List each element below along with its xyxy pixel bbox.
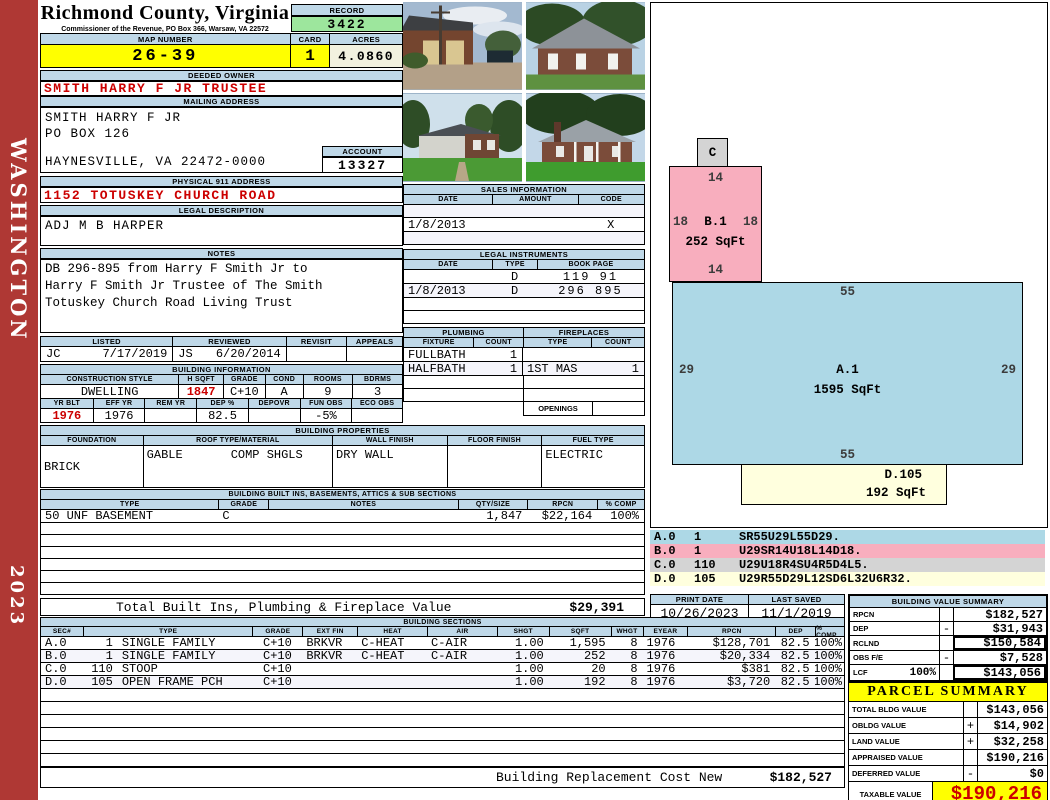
listed-initials: JC [46, 347, 60, 361]
bi-comp: 100% [597, 510, 644, 522]
val-roof-material: COMP SHGLS [183, 448, 303, 462]
col-bi-comp: % COMP [597, 500, 644, 509]
col-ecoobs: ECO OBS [351, 399, 402, 408]
bs-type: SINGLE FAMILY [118, 637, 253, 649]
reviewed-value: JS 6/20/2014 [172, 347, 285, 361]
building-sections-label: BUILDING SECTIONS [40, 617, 845, 627]
building-info-vals-1: DWELLING 1847 C+10 A 9 3 [40, 385, 403, 399]
review-values: JC 7/17/2019 JS 6/20/2014 [40, 347, 403, 362]
col-grade: GRADE [223, 375, 265, 384]
legal-instrument-empty-row [403, 311, 645, 324]
built-ins-empty-row [40, 535, 645, 547]
bvs-value: $31,943 [953, 622, 1046, 635]
fixture-count: 1 [473, 362, 523, 375]
building-section-empty-row [40, 754, 845, 767]
bs-extfin: BRKVR [302, 650, 357, 662]
sale-code [578, 205, 644, 217]
built-ins-total-value: $29,391 [569, 600, 624, 615]
legal-instruments-cols: DATE TYPE BOOK PAGE [403, 260, 645, 270]
parcel-sign [964, 750, 977, 765]
revisit-value [286, 347, 347, 361]
bs-whgt: 8 [611, 650, 643, 662]
bvs-label-text: RPCN [853, 610, 874, 619]
building-section-empty-row [40, 715, 845, 728]
bvs-sign [940, 665, 953, 680]
building-section-row: B.0 1 SINGLE FAMILY C+10 BRKVR C-HEAT C-… [40, 650, 845, 663]
plumbing-label: PLUMBING [404, 328, 523, 337]
built-ins-empty-row [40, 583, 645, 595]
sale-date [404, 205, 492, 217]
openings-count [593, 402, 644, 415]
bvs-row-label: RPCN [850, 608, 940, 621]
building-info-cols-2: YR BLT EFF YR REM YR DEP % DEPOVR FUN OB… [40, 399, 403, 409]
col-sale-code: CODE [578, 195, 644, 204]
bs-num: 1 [83, 637, 118, 649]
col-bi-rpcn: RPCN [527, 500, 597, 509]
col-roof: ROOF TYPE/MATERIAL [143, 436, 332, 445]
physical-address-value: 1152 TOTUSKEY CHURCH ROAD [40, 187, 403, 203]
a1-dim-top: 55 [673, 285, 1022, 299]
li-date: 1/8/2013 [404, 284, 492, 297]
bs-sqft: 252 [549, 650, 611, 662]
parcel-sign: + [964, 718, 977, 733]
legend-sec: B.0 [650, 544, 694, 558]
parcel-sign: - [964, 766, 977, 781]
taxable-row: TAXABLE VALUE $190,216 [849, 782, 1047, 800]
building-info-label: BUILDING INFORMATION [40, 364, 403, 375]
parcel-row: DEFERRED VALUE - $0 [849, 766, 1047, 782]
bs-eyear: 1976 [643, 676, 688, 688]
legend-row-d: D.0 105 U29R55D29L12SD6L32U6R32. [650, 572, 1045, 586]
fireplace-type [523, 348, 591, 361]
val-hsqft: 1847 [178, 385, 223, 398]
building-properties-label: BUILDING PROPERTIES [40, 425, 645, 436]
bs-type: STOOP [118, 663, 253, 675]
bvs-row: DEP - $31,943 [850, 622, 1046, 636]
notes-line-1: DB 296-895 from Harry F Smith Jr to [45, 262, 308, 276]
bvs-row-label: DEP [850, 622, 940, 635]
sales-label: SALES INFORMATION [403, 184, 645, 195]
built-ins-empty-row [40, 571, 645, 583]
a1-dim-right: 29 [1001, 363, 1016, 377]
parcel-row-label: DEFERRED VALUE [849, 766, 964, 781]
sketch-section-d105: D.105 192 SqFt [741, 464, 947, 505]
bvs-value: $143,056 [953, 665, 1046, 680]
parcel-row: LAND VALUE + $32,258 [849, 734, 1047, 750]
bs-rpcn: $128,701 [687, 637, 775, 649]
bs-shgt: 1.00 [497, 676, 549, 688]
col-li-bookpage: BOOK PAGE [537, 260, 644, 269]
val-floor-finish [447, 446, 542, 487]
built-ins-total-label: Total Built Ins, Plumbing & Fireplace Va… [116, 600, 451, 615]
sale-date: 1/8/2013 [404, 218, 492, 231]
photo-porch-view [526, 93, 645, 182]
val-funobs: -5% [300, 409, 352, 422]
li-date [404, 270, 492, 283]
building-info-cols-1: CONSTRUCTION STYLE H SQFT GRADE COND ROO… [40, 375, 403, 385]
col-fireplace-count: COUNT [591, 338, 644, 347]
col-li-type: TYPE [492, 260, 537, 269]
building-section-empty-row [40, 689, 845, 702]
bvs-label-text: DEP [853, 624, 868, 633]
deeded-owner-value: SMITH HARRY F JR TRUSTEE [40, 81, 403, 96]
bs-dep: 82.5 [775, 650, 815, 662]
sketch-section-a1: 55 29 A.1 29 1595 SqFt 55 [672, 282, 1023, 465]
spine-band: WASHINGTON 2023 [0, 0, 38, 800]
col-bdrms: BDRMS [352, 375, 402, 384]
county-subtitle: Commissioner of the Revenue, PO Box 366,… [40, 26, 290, 33]
li-bookpage: 296 895 [537, 284, 644, 297]
bs-sqft: 20 [549, 663, 611, 675]
parcel-row: TOTAL BLDG VALUE $143,056 [849, 702, 1047, 718]
parcel-row-label: LAND VALUE [849, 734, 964, 749]
bvs-row-label: RCLND [850, 636, 940, 650]
bvs-value: $150,584 [953, 636, 1046, 650]
mailing-address-label: MAILING ADDRESS [40, 96, 403, 107]
legal-instrument-row: 1/8/2013 D 296 895 [403, 284, 645, 298]
legend-row-a: A.0 1 SR55U29L55D29. [650, 530, 1045, 544]
val-bdrms: 3 [352, 385, 402, 398]
col-eyear: EYEAR [643, 627, 688, 636]
parcel-value: $0 [977, 766, 1047, 781]
a1-sqft: 1595 SqFt [673, 383, 1022, 397]
bs-extfin [302, 676, 357, 688]
parcel-summary-label: PARCEL SUMMARY [849, 683, 1047, 702]
col-dep: DEP [775, 627, 815, 636]
bvs-pct: 100% [910, 667, 936, 679]
bvs-row-label: LCF100% [850, 665, 940, 680]
val-remyr [144, 409, 196, 422]
openings-label: OPENINGS [524, 402, 593, 415]
bvs-sign: - [940, 622, 953, 635]
bs-eyear: 1976 [643, 650, 688, 662]
notes-box: DB 296-895 from Harry F Smith Jr to Harr… [40, 259, 403, 333]
account-label: ACCOUNT [322, 146, 403, 157]
review-header: LISTED REVIEWED REVISIT APPEALS [40, 336, 403, 347]
col-sec: SEC# [41, 627, 83, 636]
bi-grade: C [218, 510, 268, 522]
replacement-cost-row: Building Replacement Cost New $182,527 [40, 767, 845, 788]
bs-shgt: 1.00 [497, 650, 549, 662]
revisit-label: REVISIT [286, 337, 347, 346]
col-comp: % COMP [815, 627, 844, 636]
building-section-row: C.0 110 STOOP C+10 1.00 20 8 1976 $381 8… [40, 663, 845, 676]
col-yrblt: YR BLT [41, 399, 93, 408]
county-title: Richmond County, Virginia [40, 2, 290, 25]
b1-sqft: 252 SqFt [670, 235, 761, 249]
col-rpcn: RPCN [687, 627, 775, 636]
legend-sec: A.0 [650, 530, 694, 544]
reviewed-label: REVIEWED [172, 337, 285, 346]
val-foundation: BRICK [41, 446, 143, 487]
plumbing-row: HALFBATH 1 1ST MAS 1 [403, 362, 645, 376]
legend-num: 110 [694, 558, 739, 572]
bs-grade: C+10 [252, 650, 302, 662]
bs-extfin [302, 663, 357, 675]
parcel-sign [964, 702, 977, 717]
parcel-sign: + [964, 734, 977, 749]
sketch-section-c: C [697, 138, 728, 167]
notes-label: NOTES [40, 248, 403, 259]
district-label: WASHINGTON [6, 138, 31, 342]
col-fixture-count: COUNT [473, 338, 523, 347]
col-effyr: EFF YR [93, 399, 145, 408]
bs-shgt: 1.00 [497, 663, 549, 675]
parcel-summary: PARCEL SUMMARY TOTAL BLDG VALUE $143,056… [848, 682, 1048, 800]
bs-rpcn: $20,334 [687, 650, 775, 662]
val-yrblt: 1976 [41, 409, 93, 422]
bvs-row: LCF100% $143,056 [850, 665, 1046, 680]
bs-heat: C-HEAT [357, 650, 427, 662]
bs-dep: 82.5 [775, 663, 815, 675]
bs-sec: A.0 [41, 637, 83, 649]
card-value: 1 [290, 45, 330, 67]
bvs-row: OBS F/E - $7,528 [850, 651, 1046, 665]
bvs-label-text: OBS F/E [853, 653, 883, 662]
building-section-row: D.0 105 OPEN FRAME PCH C+10 1.00 192 8 1… [40, 676, 845, 689]
legend-sec: C.0 [650, 558, 694, 572]
val-construction-style: DWELLING [41, 385, 178, 398]
col-wall-finish: WALL FINISH [332, 436, 447, 445]
legend-num: 1 [694, 530, 739, 544]
col-grade2: GRADE [252, 627, 302, 636]
col-shgt: SHGT [497, 627, 549, 636]
last-saved-label: LAST SAVED [748, 595, 844, 604]
bs-comp: 100% [815, 676, 844, 688]
listed-value: JC 7/17/2019 [41, 347, 172, 361]
bs-heat [357, 676, 427, 688]
plumbing-fireplaces-cols: FIXTURE COUNT TYPE COUNT [403, 338, 645, 348]
legal-description-value: ADJ M B HARPER [40, 216, 403, 246]
sale-amount [492, 218, 577, 231]
legal-instruments-label: LEGAL INSTRUMENTS [403, 249, 645, 260]
physical-address-label: PHYSICAL 911 ADDRESS [40, 176, 403, 187]
d105-sqft: 192 SqFt [866, 486, 926, 500]
parcel-row: APPRAISED VALUE $190,216 [849, 750, 1047, 766]
openings-row: OPENINGS [523, 402, 645, 416]
fixture: HALFBATH [404, 362, 473, 375]
bvs-value: $182,527 [953, 608, 1046, 621]
bi-rpcn: $22,164 [527, 510, 597, 522]
replacement-cost-value: $182,527 [770, 770, 832, 785]
bs-whgt: 8 [611, 676, 643, 688]
val-wall-finish: DRY WALL [332, 446, 447, 487]
bvs-label-text: RCLND [853, 639, 879, 648]
legal-description-label: LEGAL DESCRIPTION [40, 205, 403, 216]
parcel-row: OBLDG VALUE + $14,902 [849, 718, 1047, 734]
bvs-row: RPCN $182,527 [850, 608, 1046, 622]
plumbing-row: FULLBATH 1 [403, 348, 645, 362]
col-bi-grade: GRADE [218, 500, 268, 509]
bs-whgt: 8 [611, 663, 643, 675]
col-extfin: EXT FIN [302, 627, 357, 636]
val-roof: GABLECOMP SHGLS [143, 446, 332, 487]
building-section-row: A.0 1 SINGLE FAMILY C+10 BRKVR C-HEAT C-… [40, 637, 845, 650]
sales-row [403, 205, 645, 218]
b1-dim-top: 14 [670, 171, 761, 185]
bs-eyear: 1976 [643, 637, 688, 649]
print-info-header: PRINT DATE LAST SAVED [650, 594, 845, 605]
bs-air: C-AIR [427, 650, 497, 662]
bs-air [427, 676, 497, 688]
bs-num: 110 [83, 663, 118, 675]
building-value-summary: BUILDING VALUE SUMMARY RPCN $182,527 DEP… [848, 594, 1048, 682]
notes-line-2: Harry F Smith Jr Trustee of The Smith [45, 279, 323, 293]
col-li-date: DATE [404, 260, 492, 269]
appeals-label: APPEALS [346, 337, 402, 346]
sale-date [404, 232, 492, 244]
map-number-value: 26-39 [41, 45, 290, 67]
sales-cols: DATE AMOUNT CODE [403, 195, 645, 205]
bs-grade: C+10 [252, 637, 302, 649]
parcel-row-label: OBLDG VALUE [849, 718, 964, 733]
col-remyr: REM YR [144, 399, 196, 408]
bs-rpcn: $381 [687, 663, 775, 675]
built-ins-row: 50 UNF BASEMENT C 1,847 $22,164 100% [40, 510, 645, 523]
legend-row-c: C.0 110 U29U18R4SU4R5D4L5. [650, 558, 1045, 572]
col-sale-date: DATE [404, 195, 492, 204]
building-sections-cols: SEC# TYPE GRADE EXT FIN HEAT AIR SHGT SQ… [40, 627, 845, 637]
print-date-label: PRINT DATE [651, 595, 748, 604]
bi-type: 50 UNF BASEMENT [41, 510, 218, 522]
parcel-row-label: APPRAISED VALUE [849, 750, 964, 765]
sale-amount [492, 205, 577, 217]
listed-date: 7/17/2019 [102, 347, 167, 361]
parcel-row-label: TOTAL BLDG VALUE [849, 702, 964, 717]
val-ecoobs [351, 409, 402, 422]
legend-code: SR55U29L55D29. [739, 530, 840, 544]
col-fixture: FIXTURE [404, 338, 473, 347]
bs-type: OPEN FRAME PCH [118, 676, 253, 688]
bs-air [427, 663, 497, 675]
val-cond: A [265, 385, 303, 398]
bs-num: 105 [83, 676, 118, 688]
bs-grade: C+10 [252, 676, 302, 688]
sales-row: 1/8/2013 X [403, 218, 645, 232]
col-bi-type: TYPE [41, 500, 218, 509]
plumbing-empty-row [403, 376, 645, 389]
record-label: RECORD [291, 4, 403, 16]
col-heat: HEAT [357, 627, 427, 636]
b1-dim-right: 18 [743, 215, 758, 229]
appeals-value [346, 347, 402, 361]
building-info-vals-2: 1976 1976 82.5 -5% [40, 409, 403, 423]
map-number-label: MAP NUMBER [41, 34, 290, 44]
building-properties-cols: FOUNDATION ROOF TYPE/MATERIAL WALL FINIS… [40, 436, 645, 446]
col-cond: COND [265, 375, 303, 384]
reviewed-initials: JS [178, 347, 192, 361]
a1-dim-bottom: 55 [673, 448, 1022, 462]
bs-whgt: 8 [611, 637, 643, 649]
col-fuel-type: FUEL TYPE [541, 436, 644, 445]
col-sale-amount: AMOUNT [492, 195, 577, 204]
bs-grade: C+10 [252, 663, 302, 675]
col-sqft: SQFT [549, 627, 611, 636]
property-photo-1 [403, 2, 522, 90]
fixture: FULLBATH [404, 348, 473, 361]
d105-name: D.105 [884, 468, 922, 482]
val-effyr: 1976 [93, 409, 145, 422]
legend-code: U29U18R4SU4R5D4L5. [739, 558, 869, 572]
legend-sec: D.0 [650, 572, 694, 586]
mailing-line-2: PO BOX 126 [45, 127, 130, 141]
legend-num: 1 [694, 544, 739, 558]
val-fuel-type: ELECTRIC [541, 446, 644, 487]
bs-air: C-AIR [427, 637, 497, 649]
built-ins-cols: TYPE GRADE NOTES QTY/SIZE RPCN % COMP [40, 500, 645, 510]
legend-code: U29R55D29L12SD6L32U6R32. [739, 572, 912, 586]
col-construction-style: CONSTRUCTION STYLE [41, 375, 178, 384]
col-dep-pct: DEP % [196, 399, 248, 408]
building-section-empty-row [40, 741, 845, 754]
bi-qty: 1,847 [458, 510, 528, 522]
b1-dim-bottom: 14 [670, 263, 761, 277]
sale-amount [492, 232, 577, 244]
val-depovr [248, 409, 300, 422]
acres-value: 4.0860 [329, 45, 402, 67]
sales-row [403, 232, 645, 245]
fireplace-type: 1ST MAS [523, 362, 591, 375]
parcel-value: $143,056 [977, 702, 1047, 717]
col-rooms: ROOMS [303, 375, 353, 384]
col-funobs: FUN OBS [300, 399, 352, 408]
bs-sec: C.0 [41, 663, 83, 675]
bs-comp: 100% [815, 650, 844, 662]
legend-row-b: B.0 1 U29SR14U18L14D18. [650, 544, 1045, 558]
li-bookpage: 119 91 [537, 270, 644, 283]
map-card-acres-header: MAP NUMBER CARD ACRES [40, 33, 403, 45]
parcel-value: $14,902 [977, 718, 1047, 733]
mailing-line-3: HAYNESVILLE, VA 22472-0000 [45, 155, 266, 169]
col-type: TYPE [83, 627, 253, 636]
col-air: AIR [427, 627, 497, 636]
photo-front-elevation [526, 2, 645, 90]
col-floor-finish: FLOOR FINISH [447, 436, 542, 445]
year-label: 2023 [6, 565, 27, 627]
map-card-acres-values: 26-39 1 4.0860 [40, 45, 403, 68]
col-whgt: WHGT [611, 627, 643, 636]
bvs-row-label: OBS F/E [850, 651, 940, 664]
account-value: 13327 [322, 157, 403, 173]
property-photo-2 [526, 2, 645, 90]
fireplace-count: 1 [591, 362, 644, 375]
bvs-sign [940, 636, 953, 650]
bs-comp: 100% [815, 663, 844, 675]
fireplaces-label: FIREPLACES [523, 328, 644, 337]
reviewed-date: 6/20/2014 [216, 347, 281, 361]
listed-label: LISTED [41, 337, 172, 346]
col-bi-qty: QTY/SIZE [458, 500, 528, 509]
val-rooms: 9 [303, 385, 353, 398]
sale-code [578, 232, 644, 244]
bs-sqft: 192 [549, 676, 611, 688]
li-type: D [492, 284, 537, 297]
taxable-value: $190,216 [933, 782, 1047, 800]
property-photo-3 [403, 93, 522, 182]
parcel-value: $32,258 [977, 734, 1047, 749]
val-dep-pct: 82.5 [196, 409, 248, 422]
bs-eyear: 1976 [643, 663, 688, 675]
deeded-owner-label: DEEDED OWNER [40, 70, 403, 81]
bvs-value: $7,528 [953, 651, 1046, 664]
bvs-sign: - [940, 651, 953, 664]
sale-code: X [578, 218, 644, 231]
photo-garage-view [403, 2, 522, 90]
notes-line-3: Totuskey Church Road Living Trust [45, 296, 293, 310]
bs-extfin: BRKVR [302, 637, 357, 649]
property-record-card: WASHINGTON 2023 Richmond County, Virgini… [0, 0, 1050, 800]
acres-label: ACRES [329, 34, 402, 44]
